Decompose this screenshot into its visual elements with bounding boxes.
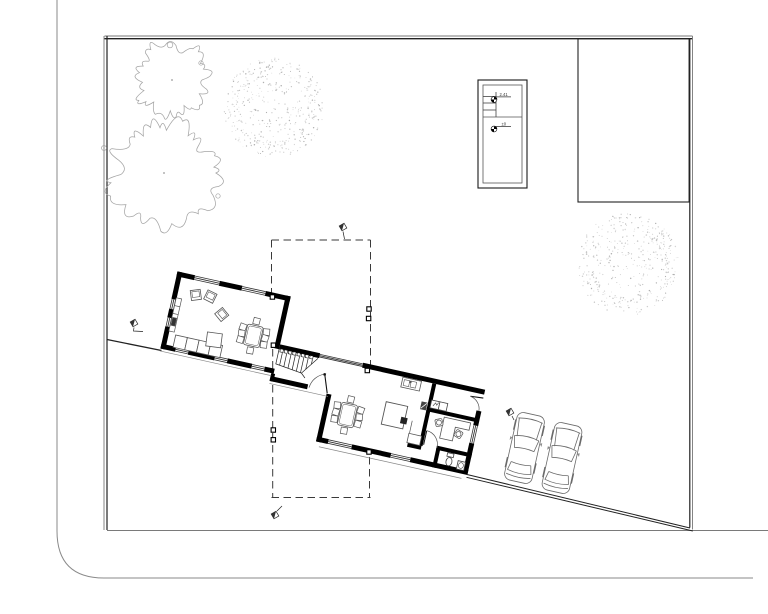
svg-text:±0: ±0 (502, 121, 507, 126)
svg-text:2.41: 2.41 (500, 92, 509, 97)
